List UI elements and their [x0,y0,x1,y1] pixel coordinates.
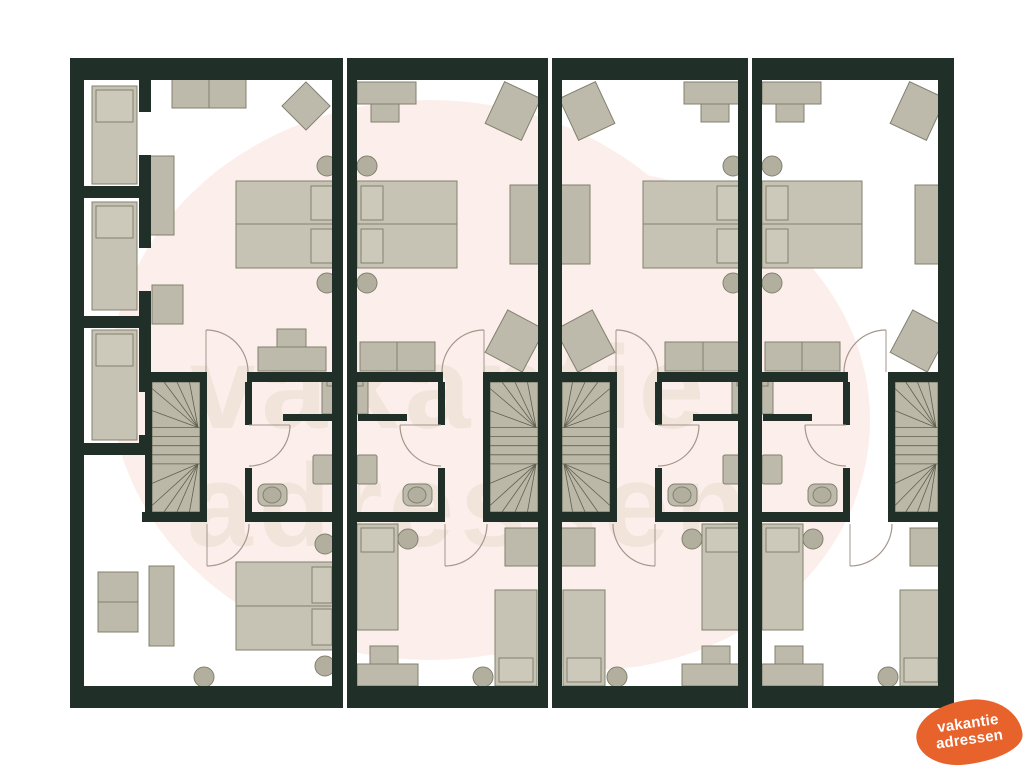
pillow [361,528,394,552]
party-wall [552,58,562,708]
interior-wall [483,382,490,512]
toilet-bowl [263,487,281,503]
desk-chair [371,104,399,122]
interior-wall [483,372,548,382]
wardrobe [510,185,540,264]
bedside-lamp [878,667,898,687]
desk [357,82,416,104]
interior-wall [655,512,743,522]
bathroom-sink [357,455,377,484]
bathroom-sink [313,455,333,484]
wardrobe [505,528,540,566]
interior-wall [552,372,617,382]
party-wall [752,58,762,708]
interior-wall [245,382,252,425]
wardrobe [149,566,174,646]
watermark-text: vakantie [190,322,710,454]
pillow [567,658,601,682]
outer-wall [552,58,748,80]
interior-wall [247,372,343,382]
interior-wall [552,512,617,522]
interior-wall [358,414,407,421]
outer-wall [752,686,954,708]
interior-wall [70,316,151,328]
pillow [96,334,133,366]
interior-wall [142,512,207,522]
pillow [311,186,333,220]
interior-wall [657,372,748,382]
desk [357,664,418,686]
pillow [766,528,799,552]
bedside-lamp [803,529,823,549]
interior-wall [843,382,850,425]
bathroom-sink [762,455,782,484]
bedside-lamp [762,156,782,176]
cabinet [152,285,183,324]
desk-chair [370,646,398,664]
pillow [96,90,133,122]
pillow [766,186,788,220]
interior-wall [245,512,333,522]
bedside-lamp [682,529,702,549]
stairs [895,382,938,512]
desk-chair [277,329,306,347]
pillow [766,229,788,263]
stairs [562,382,610,512]
outer-wall [552,686,748,708]
party-wall [332,58,343,708]
interior-wall [483,512,548,522]
outer-wall [347,58,548,80]
bedside-lamp [762,273,782,293]
interior-wall [70,443,151,455]
pillow [312,609,332,645]
interior-wall [283,414,332,421]
toilet-bowl [813,487,831,503]
interior-wall [762,512,850,522]
pillow [904,658,938,682]
interior-wall [245,468,252,515]
desk [762,664,823,686]
outer-wall [70,686,343,708]
toilet-bowl [408,487,426,503]
interior-wall [142,372,207,382]
interior-wall [752,372,848,382]
outer-wall [70,58,84,708]
interior-wall [610,382,617,512]
desk-chair [775,646,803,664]
interior-wall [763,414,812,421]
interior-wall [655,382,662,425]
bedside-lamp [607,667,627,687]
desk [258,347,326,371]
pillow [706,528,739,552]
interior-wall [438,468,445,515]
bedside-lamp [398,529,418,549]
interior-wall [139,155,151,248]
party-wall [347,58,357,708]
pillow [717,229,739,263]
outer-wall [70,58,343,80]
floor-plan-page: vakantieadressen vakantie adressen [0,0,1024,768]
party-wall [738,58,748,708]
interior-wall [438,382,445,425]
wall-seam [548,58,552,708]
interior-wall [139,80,151,112]
wardrobe [560,185,590,264]
wardrobe [560,528,595,566]
interior-wall [70,186,151,198]
interior-wall [200,382,207,512]
outer-wall [347,686,548,708]
desk-chair [776,104,804,122]
pillow [312,567,332,603]
desk [682,664,743,686]
interior-wall [357,512,445,522]
wall-seam [748,58,752,708]
bedside-lamp [357,273,377,293]
floor-lamp [194,667,214,687]
desk [762,82,821,104]
interior-wall [139,291,151,392]
pillow [361,229,383,263]
interior-wall [655,468,662,515]
interior-wall [888,382,895,512]
outer-wall [752,58,954,80]
desk [684,82,743,104]
stairs [152,382,200,512]
desk-chair [702,646,730,664]
bedside-lamp [357,156,377,176]
interior-wall [888,512,954,522]
interior-wall [693,414,742,421]
bedside-lamp [473,667,493,687]
interior-wall [347,372,443,382]
pillow [499,658,533,682]
toilet-bowl [673,487,691,503]
party-wall [538,58,548,708]
wall-seam [343,58,347,708]
outer-wall [938,58,954,708]
interior-wall [888,372,954,382]
wardrobe [150,156,174,235]
stairs [490,382,538,512]
pillow [96,206,133,238]
interior-wall [843,468,850,515]
pillow [717,186,739,220]
pillow [361,186,383,220]
pillow [311,229,333,263]
floor-plan-svg: vakantieadressen [0,0,1024,768]
desk-chair [701,104,729,122]
